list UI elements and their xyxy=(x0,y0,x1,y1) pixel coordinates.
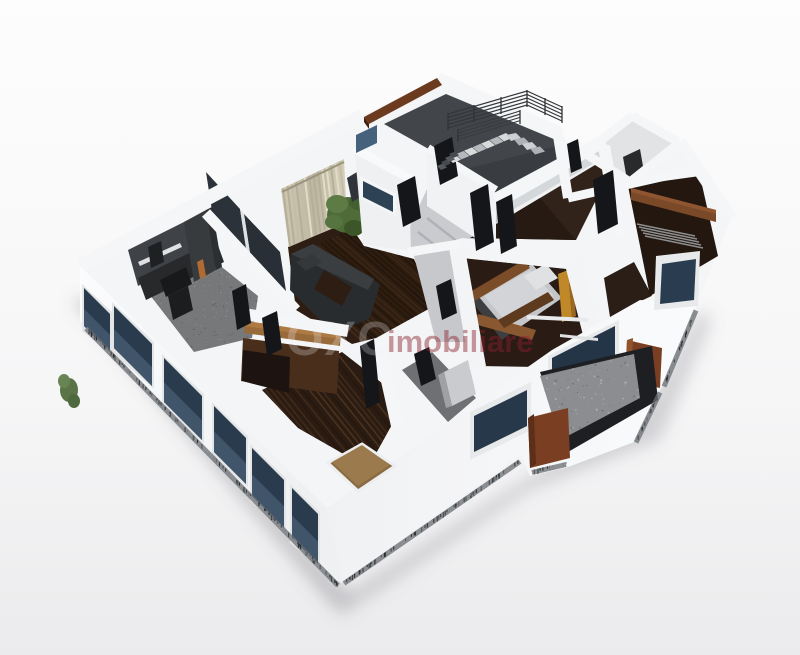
svg-text:OXC: OXC xyxy=(286,313,393,366)
svg-text:imobiliare: imobiliare xyxy=(387,324,533,359)
